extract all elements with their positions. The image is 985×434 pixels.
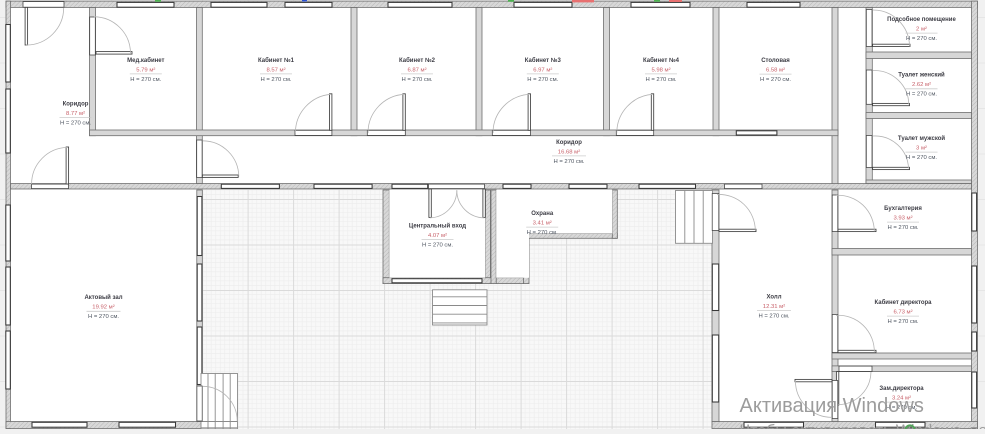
svg-text:3.41 м²: 3.41 м²	[533, 221, 552, 227]
svg-text:3 м²: 3 м²	[916, 146, 927, 152]
svg-text:4.07 м²: 4.07 м²	[428, 233, 447, 239]
svg-text:Кабинет директора: Кабинет директора	[875, 299, 933, 306]
svg-text:H = 270 см.: H = 270 см.	[60, 120, 91, 126]
svg-text:Чтобы активировать Windows, пе: Чтобы активировать Windows, перейдите в …	[740, 423, 985, 430]
svg-text:H = 270 см.: H = 270 см.	[760, 77, 791, 83]
svg-text:H = 270 см.: H = 270 см.	[906, 155, 937, 161]
svg-text:Столовая: Столовая	[761, 58, 790, 64]
svg-text:Охрана: Охрана	[531, 211, 554, 217]
svg-text:Кабинет №3: Кабинет №3	[525, 57, 562, 64]
svg-text:Кабинет №1: Кабинет №1	[258, 57, 295, 64]
svg-text:H = 270 см.: H = 270 см.	[527, 77, 558, 83]
svg-text:H = 270 см.: H = 270 см.	[645, 77, 676, 83]
svg-text:H = 270 см.: H = 270 см.	[130, 77, 161, 83]
svg-text:Центральный вход: Центральный вход	[409, 223, 466, 230]
svg-text:H = 270 см.: H = 270 см.	[553, 159, 584, 165]
svg-text:Холл: Холл	[766, 294, 781, 300]
svg-text:5.98 м²: 5.98 м²	[651, 67, 670, 73]
svg-text:12.31 м²: 12.31 м²	[763, 304, 785, 310]
svg-text:Активация Windows: Активация Windows	[740, 395, 924, 417]
svg-text:H = 270 см.: H = 270 см.	[758, 313, 789, 319]
svg-text:Кабинет №4: Кабинет №4	[643, 57, 680, 64]
svg-text:H = 270 см.: H = 270 см.	[527, 230, 558, 236]
svg-text:2 м²: 2 м²	[916, 27, 927, 33]
svg-text:8.57 м²: 8.57 м²	[266, 67, 285, 73]
svg-text:3.93 м²: 3.93 м²	[893, 216, 912, 222]
svg-text:Кабинет №2: Кабинет №2	[399, 57, 436, 64]
svg-text:H = 270 см.: H = 270 см.	[401, 77, 432, 83]
svg-text:6.97 м²: 6.97 м²	[533, 67, 552, 73]
svg-text:5.79 м²: 5.79 м²	[136, 67, 155, 73]
svg-text:H = 270 см.: H = 270 см.	[88, 314, 119, 320]
svg-text:H = 270 см.: H = 270 см.	[422, 243, 453, 249]
svg-text:6.87 м²: 6.87 м²	[407, 67, 426, 73]
svg-text:Туалет мужской: Туалет мужской	[898, 135, 945, 142]
svg-text:H = 270 см.: H = 270 см.	[887, 319, 918, 325]
svg-text:Мед.кабинет: Мед.кабинет	[127, 57, 164, 64]
svg-text:6.58 м²: 6.58 м²	[766, 68, 785, 74]
svg-text:16.68 м²: 16.68 м²	[558, 149, 580, 155]
svg-text:H = 270 см.: H = 270 см.	[260, 77, 291, 83]
svg-text:8.77 м²: 8.77 м²	[66, 111, 85, 117]
svg-text:19.92 м²: 19.92 м²	[92, 305, 114, 311]
svg-text:H = 270 см.: H = 270 см.	[887, 225, 918, 231]
svg-text:2.62 м²: 2.62 м²	[912, 82, 931, 88]
svg-text:6.73 м²: 6.73 м²	[893, 310, 912, 316]
svg-text:Туалет женский: Туалет женский	[898, 72, 945, 79]
svg-text:H = 270 см.: H = 270 см.	[906, 36, 937, 42]
svg-text:Зам.директора: Зам.директора	[879, 386, 924, 392]
svg-text:Подсобное помещение: Подсобное помещение	[887, 16, 956, 23]
svg-text:H = 270 см.: H = 270 см.	[906, 92, 937, 98]
svg-text:Бухгалтерия: Бухгалтерия	[884, 206, 922, 212]
svg-text:Коридор: Коридор	[63, 101, 89, 107]
svg-text:Актовый зал: Актовый зал	[84, 294, 122, 301]
svg-text:Коридор: Коридор	[556, 140, 582, 146]
